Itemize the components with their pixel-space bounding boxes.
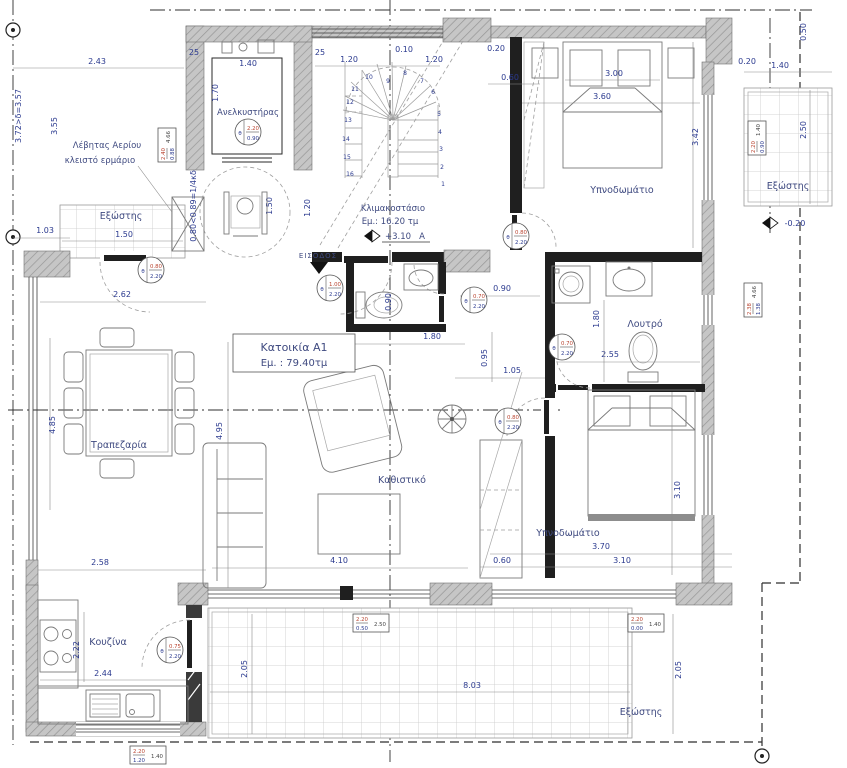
svg-text:0.90: 0.90 xyxy=(760,140,766,153)
dim-bed2-h: 3.10 xyxy=(673,481,682,499)
dim-elev-w: 1.40 xyxy=(239,59,257,68)
step-12: 12 xyxy=(346,99,354,106)
step-13: 13 xyxy=(344,117,352,124)
svg-text:θ: θ xyxy=(320,287,323,293)
elevator-label: Ανελκυστήρας xyxy=(217,108,279,118)
step-5: 5 xyxy=(437,111,441,118)
svg-text:0.80: 0.80 xyxy=(507,415,520,421)
floor-plan-drawing: Εξώστης 1.50 Εξώστης 1.40 0.20 0.50 2.50… xyxy=(0,0,847,768)
dim-elev-side-r: 25 xyxy=(315,48,325,57)
svg-text:0.70: 0.70 xyxy=(561,341,574,347)
door-tag-bedroom2: θ 0.80 2.20 xyxy=(495,408,521,434)
window-bath xyxy=(700,295,716,325)
svg-text:2.20: 2.20 xyxy=(473,304,486,310)
svg-text:2.20: 2.20 xyxy=(515,240,528,246)
svg-text:1.20: 1.20 xyxy=(133,758,146,764)
dim-wc-len: 1.80 xyxy=(423,332,441,341)
bathroom-label: Λουτρό xyxy=(627,319,663,330)
svg-text:2.20: 2.20 xyxy=(356,617,369,623)
window-tag-kitchen: 2.20 1.20 1.40 xyxy=(130,746,166,764)
dim-hall-h: 3.55 xyxy=(50,117,59,135)
dim-left-small: 1.03 xyxy=(36,226,54,235)
dining-label: Τραπεζαρία xyxy=(90,440,147,451)
bedroom1-label: Υπνοδωμάτιο xyxy=(589,185,654,196)
dim-stair-c: 1.20 xyxy=(425,55,443,64)
dim-cor-c: 1.05 xyxy=(503,366,521,375)
svg-text:2.50: 2.50 xyxy=(374,622,387,628)
dim-cor-b: 0.95 xyxy=(480,349,489,367)
dim-elev-h: 1.70 xyxy=(211,84,220,102)
terrace-label: Εξώστης xyxy=(620,707,663,718)
door-tag-kitchen: θ 0.75 2.20 xyxy=(157,637,183,663)
step-15: 15 xyxy=(343,154,351,161)
svg-text:2.20: 2.20 xyxy=(751,140,757,153)
boiler-note-1: Λέβητας Αερίου xyxy=(73,140,142,151)
svg-text:1.40: 1.40 xyxy=(151,754,164,760)
svg-text:2.20: 2.20 xyxy=(631,617,644,623)
svg-text:2.20: 2.20 xyxy=(133,749,146,755)
svg-text:2.40: 2.40 xyxy=(161,147,167,160)
dim-cor-a: 0.90 xyxy=(493,284,511,293)
dim-bed2-w: 3.70 xyxy=(592,542,610,551)
dim-lobby-w: 1.50 xyxy=(265,197,274,215)
dim-balc-r-250: 2.50 xyxy=(799,121,808,139)
kitchen-label: Κουζίνα xyxy=(89,637,127,648)
svg-text:2.20: 2.20 xyxy=(561,351,574,357)
svg-text:θ: θ xyxy=(498,420,501,426)
balcony-right-label: Εξώστης xyxy=(767,181,810,192)
svg-text:2.20: 2.20 xyxy=(247,126,260,132)
step-16: 16 xyxy=(346,171,354,178)
svg-text:0.88: 0.88 xyxy=(170,147,176,160)
entrance-label: ΕΙΣΟΔΟΣ xyxy=(299,252,337,260)
svg-text:θ: θ xyxy=(160,649,163,655)
dim-wc-w: 0.90 xyxy=(384,293,393,311)
svg-text:2.20: 2.20 xyxy=(329,292,342,298)
stair-label: Κλιμακοστάσιο xyxy=(361,204,425,214)
dim-bed1-w: 3.60 xyxy=(593,92,611,101)
dim-stair-a: 1.20 xyxy=(340,55,358,64)
dim-stair-b: 0.10 xyxy=(395,45,413,54)
dim-kitchen-w: 2.44 xyxy=(94,669,112,678)
step-1: 1 xyxy=(441,181,445,188)
svg-text:0.80: 0.80 xyxy=(150,264,163,270)
svg-text:1.38: 1.38 xyxy=(756,302,762,315)
dim-elev-side-l: 25 xyxy=(189,48,199,57)
svg-text:0.00: 0.00 xyxy=(631,626,644,632)
door-tag-entrance: θ 1.00 2.20 xyxy=(317,275,343,301)
door-tag-bedroom1: θ 0.80 2.20 xyxy=(503,223,529,249)
dim-living-h: 4.95 xyxy=(215,422,224,440)
step-2: 2 xyxy=(440,164,444,171)
unit-title-box: Κατοικία A1 Εμ. : 79.40τμ xyxy=(233,334,355,372)
door-tag-elevator: θ 2.20 0.90 xyxy=(235,119,261,145)
window-tag-right-wall: 2.38 1.38 4.66 xyxy=(744,283,762,317)
svg-text:2.38: 2.38 xyxy=(747,302,753,315)
balcony-left: Εξώστης 1.50 xyxy=(60,205,185,258)
level-marker: -0.20 xyxy=(762,217,805,229)
window-tag-terrace-right: 2.20 0.00 1.40 xyxy=(628,614,664,632)
window-right-balcony-door xyxy=(700,95,716,200)
svg-text:θ: θ xyxy=(141,269,144,275)
svg-text:2.20: 2.20 xyxy=(150,274,163,280)
step-14: 14 xyxy=(342,136,350,143)
svg-text:1.40: 1.40 xyxy=(756,123,762,136)
dim-dining-h: 4.85 xyxy=(48,416,57,434)
bedroom2-label: Υπνοδωμάτιο xyxy=(535,528,600,539)
dim-left-total: 3.72>δ=3.57 xyxy=(14,89,23,143)
door-tag-bath: θ 0.70 2.20 xyxy=(549,334,575,360)
dim-living-w: 4.10 xyxy=(330,556,348,565)
dim-bath-d: 1.80 xyxy=(592,310,601,328)
dim-lobby-w2: 1.20 xyxy=(303,199,312,217)
dim-balc-r-140: 1.40 xyxy=(771,61,789,70)
stair-level: +3.10 xyxy=(385,232,411,242)
dim-bed1-h: 3.42 xyxy=(691,128,700,146)
dim-closet-w: 0.60 xyxy=(493,556,511,565)
svg-text:4.66: 4.66 xyxy=(752,285,758,298)
dim-kitchen-h: 2.22 xyxy=(72,641,81,659)
balcony-left-label: Εξώστης xyxy=(100,211,143,222)
svg-text:θ: θ xyxy=(552,346,555,352)
svg-text:0.50: 0.50 xyxy=(356,626,369,632)
step-4: 4 xyxy=(438,129,442,136)
dim-top-left: 2.43 xyxy=(88,57,106,66)
window-tag-terrace-center: 2.20 0.50 2.50 xyxy=(353,614,389,632)
ceiling-fan-icon xyxy=(438,405,466,433)
svg-text:θ: θ xyxy=(238,131,241,137)
window-tag-left-wall: 2.40 0.88 4.66 xyxy=(158,128,176,162)
door-tag-wc: θ 0.70 2.20 xyxy=(461,287,487,313)
balcony-right-level: -0.20 xyxy=(785,219,806,228)
window-tag-balcony-right: 2.20 0.90 1.40 xyxy=(748,121,766,155)
svg-text:0.70: 0.70 xyxy=(473,294,486,300)
living-label: Καθιστικό xyxy=(378,475,426,486)
door-tag-balcony: θ 0.80 2.20 xyxy=(138,257,164,283)
dim-hall-w: 2.62 xyxy=(113,290,131,299)
unit-name: Κατοικία A1 xyxy=(260,341,327,354)
svg-text:1.00: 1.00 xyxy=(329,282,342,288)
svg-text:θ: θ xyxy=(506,235,509,241)
stair-level-letter: A xyxy=(419,232,425,242)
unit-area: Εμ. : 79.40τμ xyxy=(261,358,328,369)
svg-text:θ: θ xyxy=(464,299,467,305)
dim-stair-e: 0.60 xyxy=(501,73,519,82)
step-7: 7 xyxy=(420,78,424,85)
svg-text:0.90: 0.90 xyxy=(247,136,260,142)
dim-bed1-bed: 3.00 xyxy=(605,69,623,78)
step-3: 3 xyxy=(439,146,443,153)
dim-terrace-w: 8.03 xyxy=(463,681,481,690)
dim-sill-note: 0.80<0.89=1/4κδ xyxy=(189,170,198,242)
step-9: 9 xyxy=(386,78,390,85)
step-6: 6 xyxy=(431,89,435,96)
terrace-bottom: Εξώστης 8.03 2.05 2.05 xyxy=(208,608,683,738)
svg-text:2.20: 2.20 xyxy=(507,425,520,431)
dim-dining-w: 2.58 xyxy=(91,558,109,567)
svg-text:2.20: 2.20 xyxy=(169,654,182,660)
step-8: 8 xyxy=(403,70,407,77)
dim-balc-r-020: 0.20 xyxy=(738,57,756,66)
boiler-note-2: κλειστό ερμάριο xyxy=(65,155,135,166)
svg-text:0.80: 0.80 xyxy=(515,230,528,236)
dim-balc-r-050: 0.50 xyxy=(799,23,808,41)
dim-stair-d: 0.20 xyxy=(487,44,505,53)
dim-balcony-left: 1.50 xyxy=(115,230,133,239)
window-bedroom2 xyxy=(700,435,716,515)
dim-bed2-w2: 3.10 xyxy=(613,556,631,565)
dim-terrace-hl: 2.05 xyxy=(240,660,249,678)
stair-area: Εμ.: 16.20 τμ xyxy=(362,217,419,227)
step-11: 11 xyxy=(351,86,359,93)
svg-text:0.75: 0.75 xyxy=(169,644,181,650)
step-10: 10 xyxy=(365,74,373,81)
svg-text:4.66: 4.66 xyxy=(166,130,172,143)
dim-terrace-hr: 2.05 xyxy=(674,661,683,679)
svg-text:1.40: 1.40 xyxy=(649,622,662,628)
